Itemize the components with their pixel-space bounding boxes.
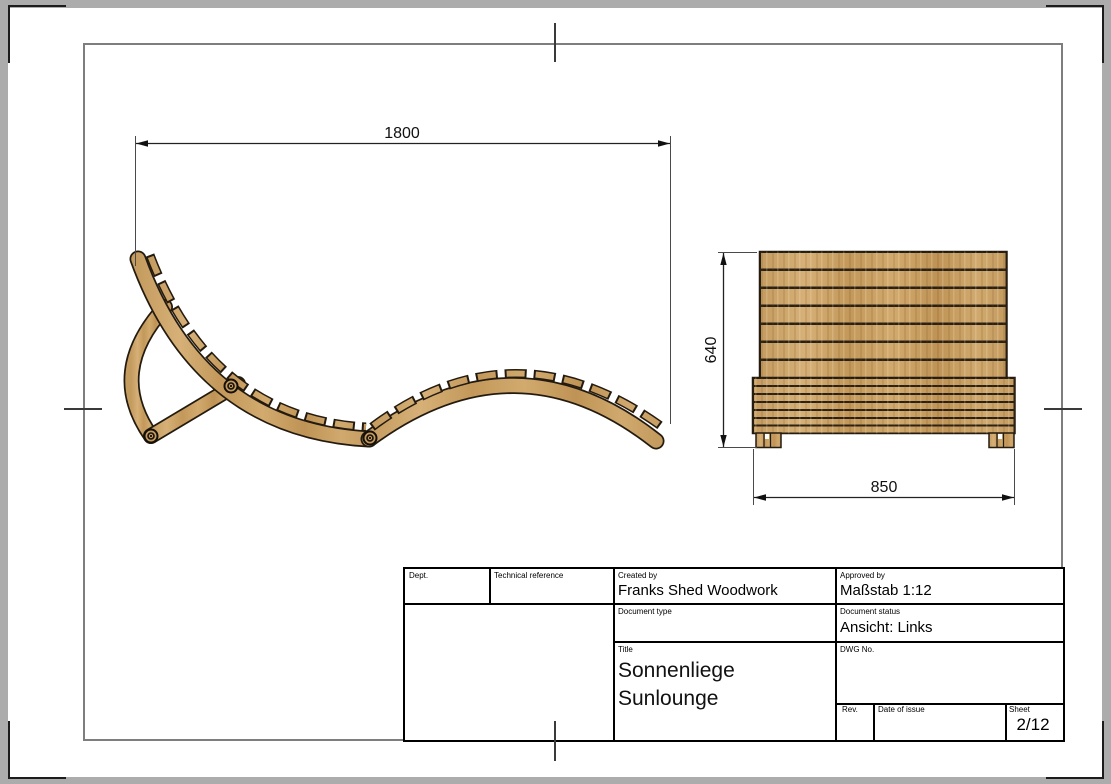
arrowhead-left-icon [136, 140, 148, 147]
document-type-label: Document type [618, 607, 672, 617]
screenshot-root: { "colors": { "background": "#acacac", "… [0, 0, 1111, 784]
arrowhead-down-icon [720, 435, 726, 447]
divider [489, 569, 491, 605]
sheet-label: Sheet [1009, 705, 1030, 715]
title-value-line2: Sunlounge [618, 685, 718, 713]
divider [873, 703, 875, 740]
rev-label: Rev. [842, 705, 858, 715]
divider [613, 569, 615, 740]
approved-by-label: Approved by [840, 571, 885, 581]
dimension-front-height-text: 640 [703, 337, 720, 364]
dept-label: Dept. [409, 571, 428, 581]
arrowhead-left-icon [754, 494, 766, 501]
document-status-value: Ansicht: Links [840, 619, 933, 637]
base-band-grain [753, 378, 1016, 434]
divider [405, 603, 1063, 605]
arrowhead-right-icon [658, 140, 670, 147]
approved-by-value: Maßstab 1:12 [840, 582, 932, 600]
pivot-bolt-hinge [364, 432, 377, 445]
document-status-label: Document status [840, 607, 900, 617]
pivot-bolt-ground [145, 430, 158, 443]
center-tick-top [554, 23, 556, 62]
front-view [753, 252, 1016, 448]
sheet-value: 2/12 [1005, 715, 1061, 735]
created-by-label: Created by [618, 571, 657, 581]
pivot-bolt-strut [225, 380, 238, 393]
center-tick-right [1044, 408, 1082, 410]
center-tick-left [64, 408, 102, 410]
divider [835, 569, 837, 740]
divider [613, 641, 1063, 643]
center-tick-bottom [554, 721, 556, 761]
arrowhead-up-icon [720, 253, 726, 265]
dwg-no-label: DWG No. [840, 645, 874, 655]
backrest-rail [138, 259, 369, 439]
dimension-side-length-text: 1800 [384, 125, 420, 142]
side-view [132, 255, 665, 445]
title-value-line1: Sonnenliege [618, 657, 735, 685]
arrowhead-right-icon [1002, 494, 1014, 501]
title-block: Dept. Technical reference Created by Fra… [403, 567, 1065, 742]
created-by-value: Franks Shed Woodwork [618, 582, 778, 600]
title-label: Title [618, 645, 633, 655]
technical-reference-label: Technical reference [494, 571, 563, 581]
dimension-front-width: 850 [754, 449, 1015, 505]
front-panel-grain [760, 252, 1008, 379]
dimension-front-width-text: 850 [871, 479, 898, 496]
foot-right [989, 433, 1014, 448]
dimension-front-height: 640 [703, 253, 757, 448]
date-of-issue-label: Date of issue [878, 705, 925, 715]
foot-left [756, 433, 781, 448]
